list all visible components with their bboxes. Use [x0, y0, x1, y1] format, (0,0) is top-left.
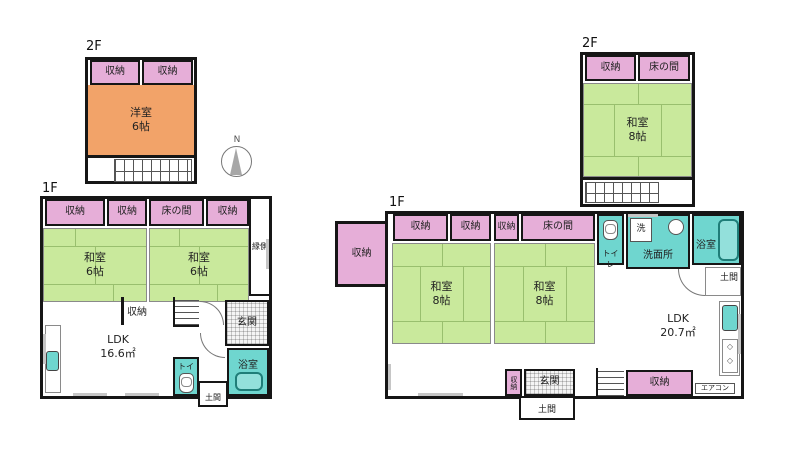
compass: N [219, 135, 255, 183]
entrance-genkan: 玄関 [225, 300, 269, 346]
room-name: 洋室 [130, 106, 152, 120]
closet: 収納 [626, 370, 693, 396]
laundry-box: 洗 [630, 218, 652, 242]
closet: 収納 [45, 199, 105, 226]
closet: 収納 [494, 214, 519, 241]
japanese-room: 和室 6帖 [149, 228, 249, 302]
washroom: 洗 洗面所 [626, 214, 690, 269]
kitchen-sink-icon [46, 351, 59, 371]
bath-label: 浴室 [229, 356, 267, 371]
detached-closet: 収納 [335, 221, 388, 287]
door-arc [678, 269, 705, 296]
toilet-icon [603, 220, 618, 240]
closet: 収納 [206, 199, 249, 226]
closet: 収納 [450, 214, 491, 241]
doma-area: 土間 [519, 396, 575, 420]
window-marker [628, 214, 658, 217]
window-marker [125, 393, 159, 396]
room-size: 6帖 [132, 120, 150, 134]
room-name: 和室 [84, 251, 106, 265]
left-building-1f: 収納 収納 床の間 収納 縁側 和室 6帖 和室 6帖 LDK 16.6㎡ 収納 [40, 196, 272, 399]
washbasin-icon [668, 219, 684, 235]
right-1f-label: 1F [389, 195, 405, 210]
washroom-label: 洗面所 [628, 246, 688, 261]
room-name: 和室 [534, 280, 556, 294]
closet-label: 収納 [127, 303, 147, 318]
right-building-1f: 収納 収納 収納 床の間 和室 8帖 和室 8帖 トイレ 洗 洗面所 浴室 [385, 211, 744, 399]
toilet-label: トイレ [599, 248, 622, 270]
kitchen-sink-icon [722, 305, 738, 331]
compass-needle-icon [230, 148, 242, 175]
stove-icon: ◇◇ [722, 339, 738, 373]
doma-area: 土間 [705, 267, 741, 296]
tokonoma: 床の間 [638, 55, 690, 81]
toilet-room: トイレ [597, 214, 624, 265]
tokonoma: 床の間 [521, 214, 595, 241]
room-size: 6帖 [190, 265, 208, 279]
room-name: 和室 [627, 116, 649, 130]
closet: 収納 [505, 369, 522, 396]
right-2f-label: 2F [582, 36, 598, 51]
right-building-2f: 収納 床の間 和室 8帖 [580, 52, 695, 207]
western-room: 洋室 6帖 [88, 85, 194, 155]
room-name: LDK [107, 333, 129, 347]
room-size: 20.7㎡ [660, 326, 696, 340]
entrance-genkan: 玄関 [524, 369, 575, 396]
staircase [173, 297, 199, 327]
bathtub-icon [235, 372, 263, 391]
closet: 収納 [107, 199, 147, 226]
room-size: 8帖 [433, 294, 451, 308]
door-arc [200, 301, 224, 325]
left-building-2f: 収納 収納 洋室 6帖 [85, 57, 197, 184]
window-marker [266, 239, 269, 269]
left-1f-label: 1F [42, 181, 58, 196]
bathroom: 浴室 [227, 348, 269, 396]
room-name: 和室 [431, 280, 453, 294]
closet: 収納 [585, 55, 636, 81]
japanese-room: 和室 8帖 [392, 243, 491, 344]
staircase [583, 177, 692, 204]
japanese-room: 和室 8帖 [494, 243, 595, 344]
room-name: 和室 [188, 251, 210, 265]
closet: 収納 [90, 60, 140, 85]
staircase [596, 368, 624, 396]
aircon-unit: エアコン [695, 383, 735, 394]
ldk-room: LDK 20.7㎡ [635, 306, 721, 346]
bath-label: 浴室 [696, 236, 716, 251]
bathroom: 浴室 [692, 214, 741, 265]
room-size: 6帖 [86, 265, 104, 279]
bathtub-icon [718, 219, 739, 261]
ldk-room: LDK 16.6㎡ [63, 327, 173, 367]
window-marker [388, 364, 391, 390]
room-size: 8帖 [536, 294, 554, 308]
room-name: LDK [667, 312, 689, 326]
door-arc [200, 333, 225, 358]
japanese-room: 和室 8帖 [583, 83, 692, 177]
closet: 収納 [393, 214, 448, 241]
staircase [88, 155, 194, 181]
compass-north-label: N [219, 135, 255, 145]
tokonoma: 床の間 [149, 199, 204, 226]
window-marker [738, 314, 741, 354]
window-marker [73, 393, 107, 396]
window-marker [43, 334, 46, 364]
toilet-icon [179, 373, 194, 393]
toilet-room: トイレ [173, 357, 199, 396]
window-marker [418, 393, 463, 396]
doma-area: 土間 [198, 381, 228, 407]
room-size: 8帖 [629, 130, 647, 144]
left-2f-label: 2F [86, 39, 102, 54]
floor-plan: 2F 収納 収納 洋室 6帖 N 1F 収納 収納 床の間 収納 縁側 和室 6… [0, 0, 800, 456]
wall-stub [121, 297, 124, 325]
room-size: 16.6㎡ [100, 347, 136, 361]
japanese-room: 和室 6帖 [43, 228, 147, 302]
closet: 収納 [142, 60, 193, 85]
